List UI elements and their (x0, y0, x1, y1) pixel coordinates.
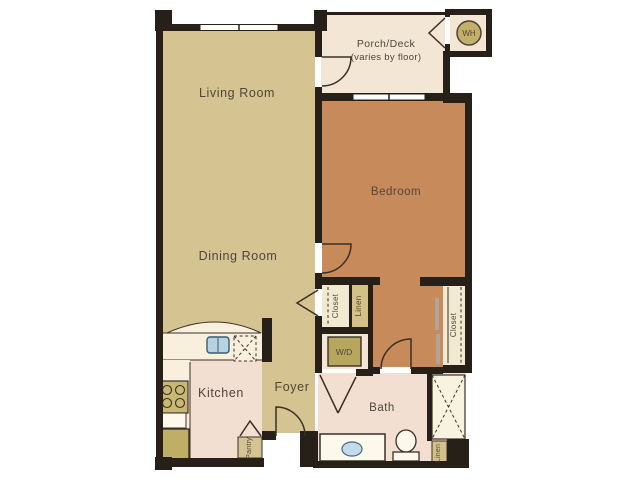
hall-closet-label: Closet (331, 293, 340, 318)
dining-room-label: Dining Room (199, 249, 278, 263)
living-room-label: Living Room (199, 86, 275, 100)
porch-label: Porch/Deck (357, 38, 416, 50)
bath-linen-label: Linen (435, 444, 442, 462)
washer-dryer-label: W/D (336, 347, 353, 357)
foyer-label: Foyer (275, 380, 310, 394)
water-heater-label: WH (462, 29, 476, 38)
bedroom-closet-label: Closet (449, 312, 458, 337)
shower (432, 375, 465, 439)
floor-plan-page: Living Room Dining Room Kitchen Foyer Ba… (0, 0, 640, 480)
hall-linen-label: Linen (354, 295, 363, 316)
closet-sliding-door-panel (435, 298, 439, 330)
dishwasher (234, 336, 256, 361)
closet-sliding-door-panel (436, 334, 440, 364)
floor-plan-svg: Living Room Dining Room Kitchen Foyer Ba… (0, 0, 640, 480)
kitchen-counter-segment (161, 413, 186, 428)
bedroom-label: Bedroom (371, 186, 421, 198)
pantry-label: Pantry (246, 437, 253, 459)
kitchen-label: Kitchen (198, 386, 244, 400)
bath-label: Bath (369, 402, 395, 414)
refrigerator (160, 429, 189, 459)
room-bedroom-lobe-floor (373, 277, 443, 367)
porch-sublabel: (varies by floor) (351, 52, 422, 63)
bathroom-vanity (320, 434, 385, 461)
stove (159, 381, 188, 413)
bathroom-sink (342, 442, 362, 456)
